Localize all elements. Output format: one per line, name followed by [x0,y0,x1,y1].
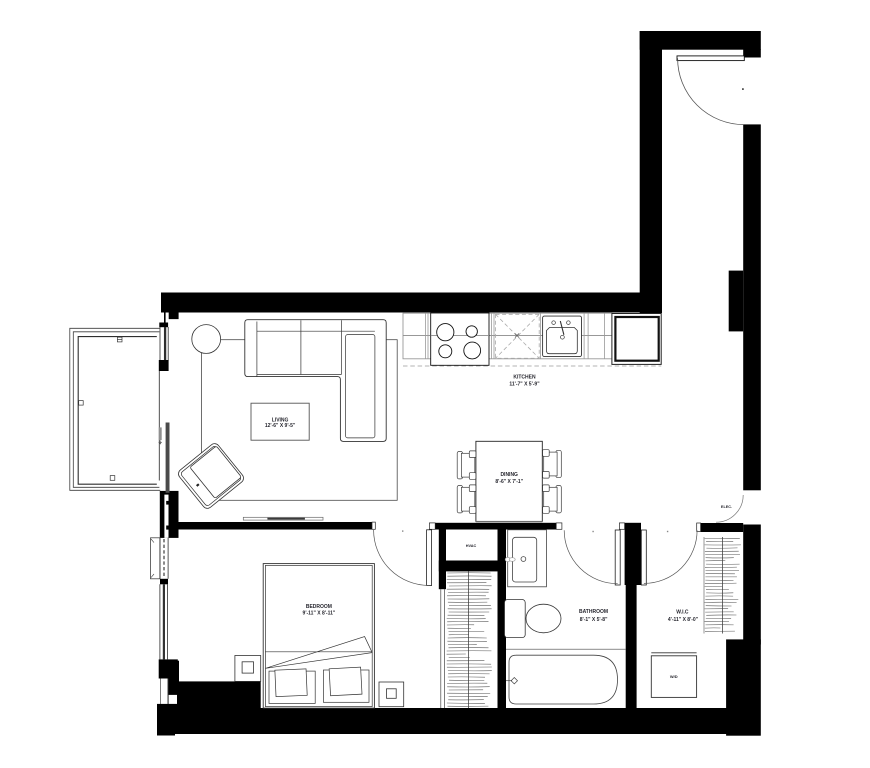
svg-text:12'-6" X 9'-5": 12'-6" X 9'-5" [265,423,296,429]
svg-text:4'-11" X 8'-0": 4'-11" X 8'-0" [668,617,699,623]
svg-text:9'-11" X 8'-11": 9'-11" X 8'-11" [303,611,336,617]
svg-text:DINING: DINING [500,472,518,478]
svg-text:W.I.C: W.I.C [676,610,689,616]
svg-text:8'-6" X 7'-1": 8'-6" X 7'-1" [495,479,523,485]
svg-text:HVAC: HVAC [466,544,477,548]
svg-text:W/D: W/D [670,674,678,679]
svg-text:KITCHEN: KITCHEN [513,375,536,381]
svg-text:11'-7" X 5'-9": 11'-7" X 5'-9" [509,382,540,388]
svg-text:ELEC.: ELEC. [721,505,732,509]
svg-text:BEDROOM: BEDROOM [306,604,332,610]
svg-text:8'-1" X 5'-8": 8'-1" X 5'-8" [580,617,608,623]
svg-text:BATHROOM: BATHROOM [579,609,608,615]
